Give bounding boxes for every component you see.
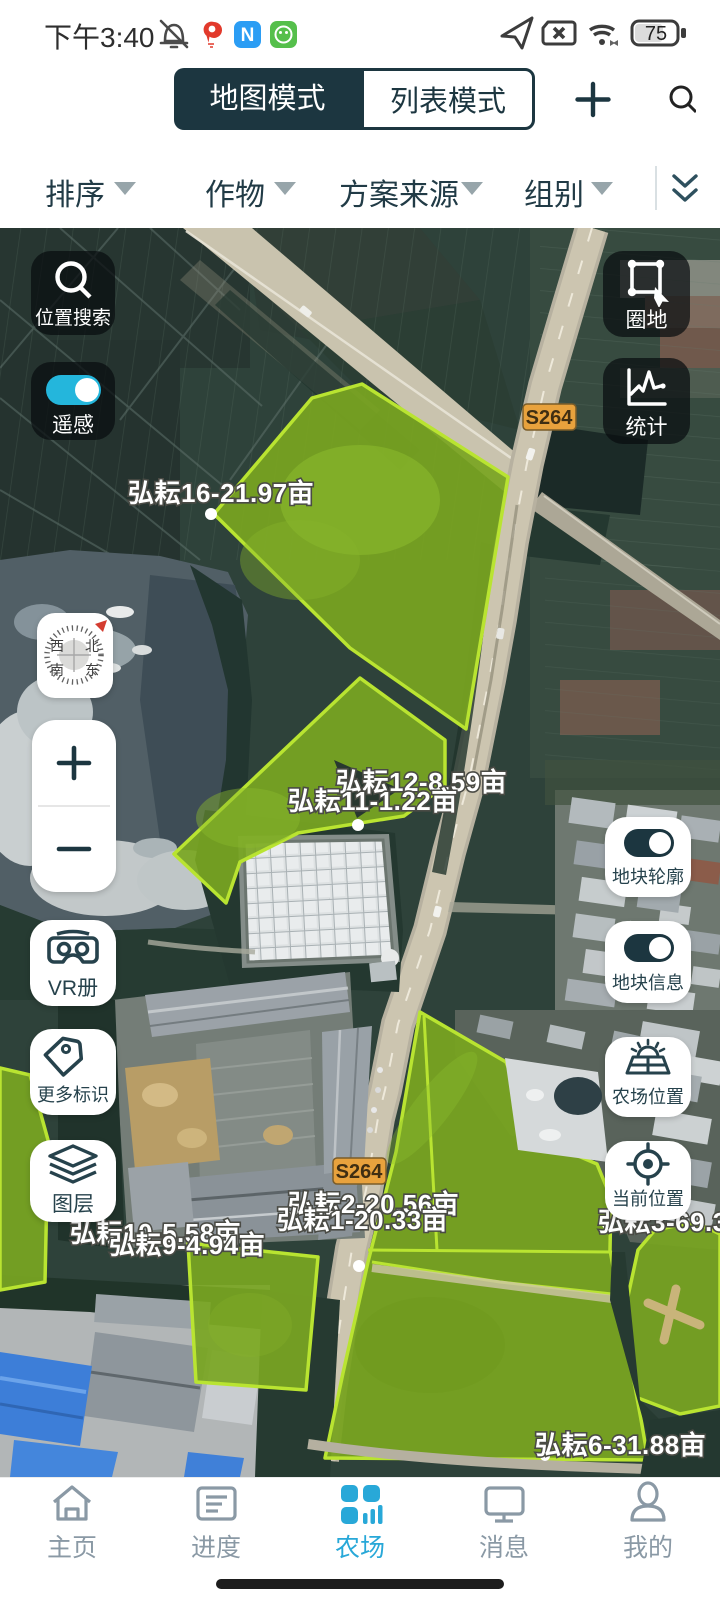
- svg-text:弘耘1-20.33亩: 弘耘1-20.33亩: [277, 1205, 448, 1235]
- svg-text:S264: S264: [336, 1161, 384, 1183]
- svg-text:N: N: [241, 25, 255, 46]
- svg-text:弘耘16-21.97亩: 弘耘16-21.97亩: [128, 478, 314, 508]
- svg-text:75: 75: [645, 23, 667, 45]
- svg-text:北: 北: [85, 638, 99, 654]
- svg-text:西: 西: [50, 638, 64, 654]
- svg-text:弘耘9-4.94亩: 弘耘9-4.94亩: [109, 1230, 265, 1260]
- svg-text:东: 东: [85, 662, 99, 678]
- svg-text:S264: S264: [526, 407, 574, 429]
- svg-text:弘耘6-31.88亩: 弘耘6-31.88亩: [535, 1430, 706, 1460]
- svg-text:弘耘11-1.22亩: 弘耘11-1.22亩: [288, 786, 458, 816]
- svg-text:南: 南: [50, 662, 64, 678]
